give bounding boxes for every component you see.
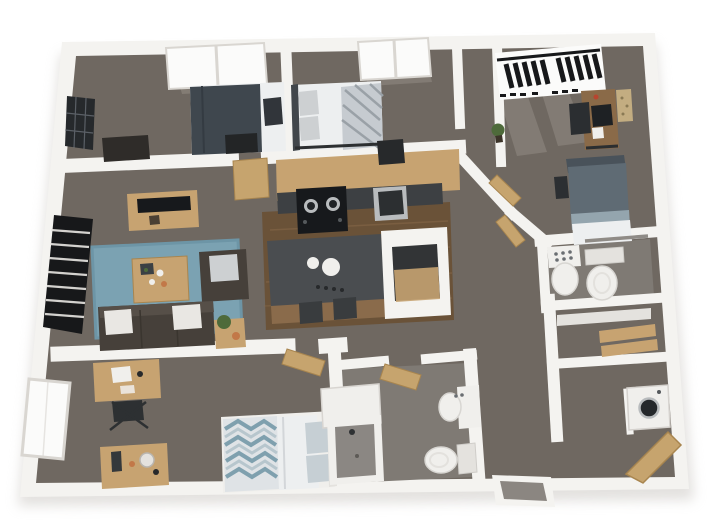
washer-door bbox=[640, 399, 659, 418]
laptop bbox=[111, 366, 132, 383]
plate-large bbox=[322, 258, 340, 276]
desk-chair bbox=[569, 102, 591, 135]
desk-D bbox=[93, 359, 161, 402]
bed-C bbox=[566, 155, 632, 245]
sofa-pillow bbox=[172, 304, 202, 330]
kitchen-sink bbox=[373, 186, 408, 221]
laundry-nook bbox=[627, 385, 670, 430]
kitchen-island bbox=[267, 234, 386, 324]
monitor bbox=[591, 104, 613, 127]
pillow bbox=[298, 90, 319, 116]
bedroomD-window bbox=[22, 379, 70, 459]
dark-pillow bbox=[263, 97, 283, 126]
shower-head bbox=[349, 429, 355, 435]
pillow bbox=[299, 116, 320, 141]
media-console bbox=[127, 190, 199, 231]
floor-plan-svg bbox=[0, 0, 718, 532]
armchair bbox=[199, 249, 249, 302]
bed-B bbox=[291, 81, 383, 151]
wall-bedroomD-north bbox=[58, 346, 288, 354]
plate-small bbox=[307, 257, 319, 269]
foot-bench bbox=[225, 133, 258, 154]
desk-dark bbox=[102, 135, 150, 162]
floor-plan-image bbox=[0, 0, 718, 532]
side-table bbox=[214, 315, 246, 349]
plant bbox=[217, 315, 231, 329]
dresser bbox=[100, 443, 169, 489]
tv bbox=[137, 196, 191, 213]
drain bbox=[355, 454, 359, 458]
bedroomA-door-open bbox=[233, 158, 269, 200]
bar-stool bbox=[299, 301, 323, 324]
bar-stool bbox=[333, 297, 357, 320]
sofa-pillow bbox=[104, 309, 133, 335]
pantry-box bbox=[381, 227, 451, 319]
pinboard bbox=[616, 89, 633, 122]
wall-bedroomB-east bbox=[457, 48, 460, 124]
nightstand bbox=[554, 176, 569, 199]
cooktop bbox=[296, 186, 348, 234]
bedroomB-window bbox=[358, 38, 431, 80]
coffee-table bbox=[132, 256, 189, 303]
chair-dark bbox=[377, 139, 405, 165]
exterior-step bbox=[492, 475, 555, 507]
paper bbox=[592, 127, 604, 139]
wall-bedroomA-B-divider bbox=[286, 52, 290, 152]
bedroomA-window bbox=[166, 43, 267, 89]
bedroomA-wall-art bbox=[65, 96, 95, 150]
shower bbox=[327, 415, 384, 485]
wall-closet-south bbox=[552, 357, 662, 364]
bed-D bbox=[221, 411, 337, 493]
sofa bbox=[98, 301, 215, 351]
wall-bathroom-bottom-north-left bbox=[340, 361, 384, 365]
wall-bedrooms-south-left bbox=[62, 159, 232, 166]
pillow bbox=[306, 454, 330, 483]
mirror bbox=[140, 453, 154, 467]
armchair-pillow bbox=[209, 254, 239, 282]
